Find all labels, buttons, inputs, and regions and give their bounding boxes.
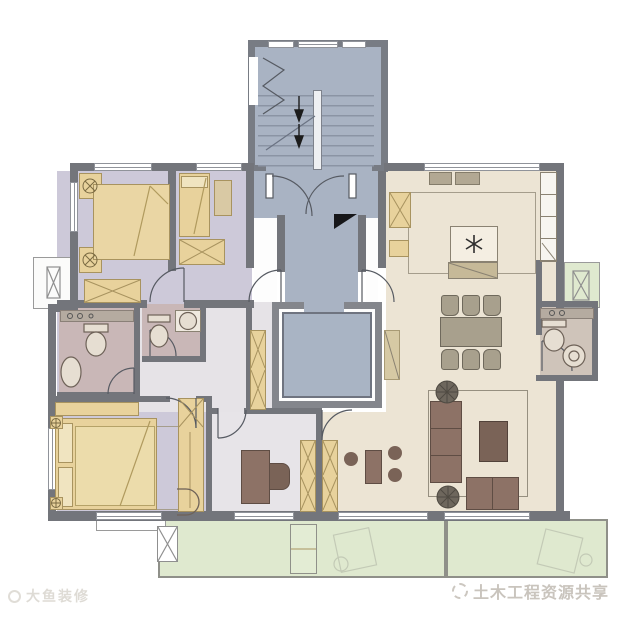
- master-nightstand-bottom: [50, 497, 63, 510]
- master-nightstand-top: [50, 416, 63, 429]
- watermark-left: 大鱼装修: [8, 586, 90, 606]
- elevator-shaft: [272, 302, 382, 408]
- wardrobe-bedroom2: [179, 239, 225, 265]
- floor-entry-lobby: [254, 171, 378, 218]
- floor-corridor: [285, 218, 358, 302]
- window-living-bottom: [444, 512, 530, 520]
- wall-master-study: [206, 396, 212, 518]
- tea-table: [365, 450, 382, 484]
- stool-1: [344, 452, 358, 466]
- stool-2: [388, 446, 402, 460]
- stair-window-center: [298, 41, 338, 48]
- dining-chair-1: [441, 295, 459, 316]
- window-kitchen-top: [424, 163, 540, 171]
- vanity-bath3: [540, 308, 594, 319]
- watermark-right: 土木工程资源共享: [452, 579, 609, 603]
- shaft-void-right: [366, 218, 378, 302]
- dining-chair-6: [483, 349, 501, 370]
- window-bedroom1-top: [94, 163, 152, 171]
- bay-window-sill: [96, 520, 166, 531]
- watermark-right-text: 土木工程资源共享: [473, 579, 609, 603]
- balcony-right: [446, 519, 608, 578]
- kitchen-cabinet-top-a: [429, 172, 452, 185]
- stair-door-niche: [249, 57, 258, 105]
- stair-stringer: [313, 90, 322, 170]
- watermark-left-text: 大鱼装修: [26, 586, 90, 606]
- kitchen-island-base: [448, 262, 498, 279]
- wardrobe-bedroom1: [84, 279, 141, 303]
- wall-below-bedrooms-b: [184, 300, 254, 308]
- balcony-door-left: [338, 512, 428, 520]
- dining-chair-5: [462, 349, 480, 370]
- watermark-left-logo-icon: [8, 590, 21, 603]
- balcony-column: [157, 526, 178, 562]
- wall-dining-bath-stub: [536, 260, 542, 305]
- sofa-loveseat: [466, 477, 519, 510]
- kitchen-island: [450, 226, 498, 262]
- pillow-bed2: [181, 176, 208, 188]
- elevator-car: [282, 312, 372, 398]
- shaft-void-left: [254, 218, 277, 302]
- window-study-bottom: [234, 512, 294, 520]
- master-blanket: [75, 426, 155, 506]
- hall-cabinet: [250, 330, 266, 410]
- wall-lobby-left: [246, 171, 254, 268]
- double-bed-1: [93, 184, 170, 260]
- wall-bath3-bottom: [536, 375, 598, 381]
- study-chair: [269, 463, 290, 490]
- master-wardrobe: [178, 398, 204, 512]
- study-desk: [241, 450, 270, 504]
- sink-counter-bath2: [175, 310, 201, 332]
- dining-chair-3: [483, 295, 501, 316]
- dining-chair-4: [441, 349, 459, 370]
- floor-corridor-stem: [304, 298, 344, 312]
- window-bedroom1-left: [70, 182, 78, 232]
- dining-chair-2: [462, 295, 480, 316]
- vanity-bath1: [60, 310, 134, 322]
- coffee-table: [479, 421, 508, 462]
- wall-lobby-right: [378, 171, 386, 268]
- desk-bedroom2: [214, 180, 232, 216]
- balcony-divider-cabinet: [290, 524, 317, 574]
- kitchen-side-cabinet: [389, 240, 409, 257]
- window-bedroom2-top: [196, 163, 242, 171]
- elevator-vent-shaft: [384, 330, 400, 380]
- wall-corridor-right: [358, 215, 366, 272]
- wall-right-upper: [556, 163, 564, 308]
- master-pillow-1: [58, 423, 73, 463]
- wall-right-lower: [556, 375, 564, 518]
- kitchen-tall-cabinets: [540, 172, 557, 262]
- window-master-bottom: [96, 512, 162, 520]
- wall-study-top-a: [206, 408, 218, 414]
- kitchen-cabinet-top-b: [455, 172, 480, 185]
- floor-plan-canvas: 大鱼装修 土木工程资源共享: [0, 0, 640, 625]
- wall-bath1-right: [134, 308, 140, 396]
- stair-window-left: [268, 41, 294, 48]
- watermark-right-logo-icon: [452, 583, 468, 599]
- wall-corridor-left: [277, 215, 285, 272]
- wall-bath3-top: [536, 301, 598, 307]
- wall-bath2-bottom: [142, 356, 206, 362]
- stair-window-right: [342, 41, 366, 48]
- stool-3: [388, 468, 402, 482]
- fridge: [389, 192, 411, 228]
- dining-table: [440, 317, 502, 347]
- cabinet-party-left: [300, 440, 316, 512]
- cabinet-party-right: [322, 440, 338, 512]
- master-shelf: [55, 402, 139, 416]
- sofa-long: [430, 401, 462, 483]
